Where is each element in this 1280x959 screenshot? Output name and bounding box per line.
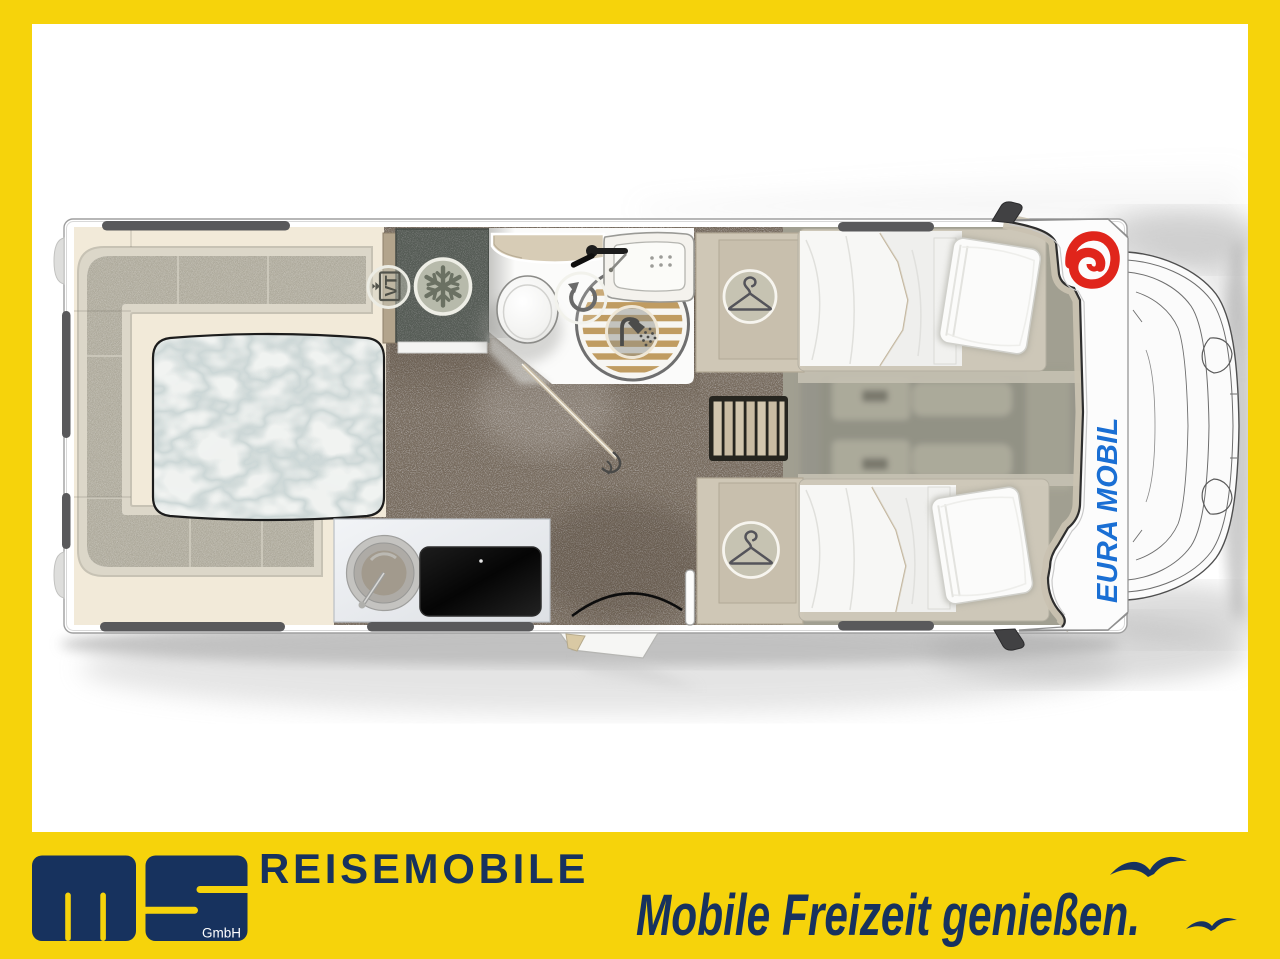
svg-text:VT: VT [383, 275, 401, 296]
svg-text:GmbH: GmbH [202, 926, 241, 941]
svg-text:REISEMOBILE: REISEMOBILE [259, 845, 589, 892]
svg-text:EURA MOBIL: EURA MOBIL [1092, 417, 1124, 603]
svg-text:Mobile Freizeit genießen.: Mobile Freizeit genießen. [636, 883, 1140, 948]
